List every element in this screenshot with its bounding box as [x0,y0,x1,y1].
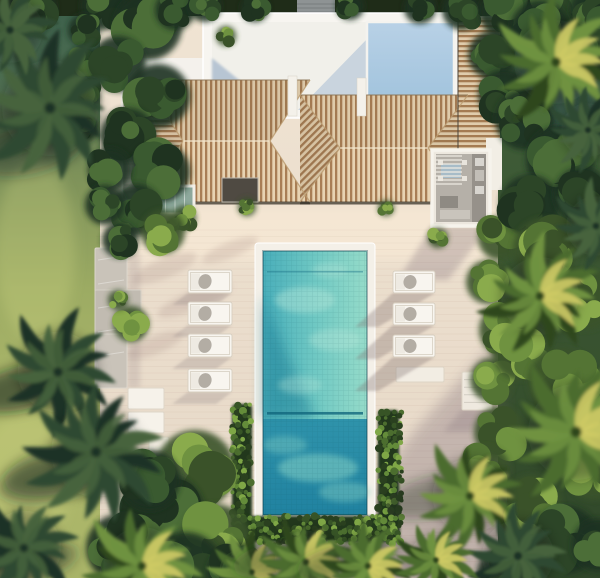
hedge-leaf [245,444,252,451]
hedge-leaf [342,537,347,542]
hedge-leaf [239,482,246,489]
hedge-leaf [247,492,252,497]
hedge-leaf [398,478,404,484]
hedge-leaf [236,464,241,469]
hedge-leaf [375,428,382,435]
hedge-leaf [398,440,403,445]
hedge-leaf [390,467,398,475]
hedge-leaf [398,520,404,526]
hedge-leaf [376,416,381,421]
garden-bush [165,79,185,99]
hedge-leaf [238,459,243,464]
hedge-leaf [247,479,255,487]
garden-bush [93,203,111,221]
hedge-leaf [259,529,263,533]
hedge-leaf [383,409,390,416]
hedge-leaf [308,521,312,525]
hedge-leaf [374,504,382,512]
pool-tile-grid [263,251,367,515]
hedge-leaf [397,413,403,419]
hedge-leaf [264,515,268,519]
hedge-leaf [384,471,389,476]
hedge-leaf [366,520,373,527]
potted-plant [114,292,123,301]
hedge-leaf [378,421,382,425]
hedge-leaf [379,476,387,484]
hedge-leaf [240,497,247,504]
hedge-leaf [230,490,234,494]
garden-bush [344,7,354,17]
hedge-leaf [240,504,246,510]
hedge-leaf [392,410,397,415]
palm-crown [585,127,591,133]
garden-bush [543,230,562,249]
garden-bush [111,235,128,252]
outdoor-kitchen-part [440,196,458,208]
hedge-leaf [380,517,387,524]
hedge-leaf [392,482,398,488]
deck-furniture [128,388,164,409]
hedge-leaf [388,521,392,525]
outdoor-kitchen-part [475,158,484,166]
hedge-leaf [322,524,329,531]
outdoor-kitchen-part [462,160,467,165]
potted-plant [386,205,392,211]
hedge-leaf [354,519,361,526]
hedge-leaf [396,422,403,429]
hedge-leaf [341,520,346,525]
garden-bush [501,123,520,142]
hedge-leaf [396,460,401,465]
garden-bush [147,230,160,243]
potted-plant [223,35,235,47]
hedge-leaf [241,468,247,474]
hedge-leaf [264,520,271,527]
hedge-leaf [388,430,394,436]
hedge-leaf [393,443,400,450]
garden-bush [482,218,503,239]
garden-bush [514,190,544,220]
garden-bush [462,4,478,20]
hedge-leaf [370,514,374,518]
hedge-leaf [375,444,383,452]
garden-bush [205,7,219,21]
hedge-leaf [316,515,320,519]
palm-crown [593,223,600,230]
palm-crown [551,57,561,67]
hedge-leaf [380,487,388,495]
hedge-leaf [251,519,255,523]
garden-bush [415,5,428,18]
potted-plant [247,199,253,205]
hedge-leaf [381,496,387,502]
hedge-leaf [384,416,388,420]
palm-crown [514,552,522,560]
hedge-leaf [235,422,241,428]
hedge-leaf [248,403,252,407]
palm-crown [570,426,581,437]
hedge-leaf [271,535,275,539]
hedge-leaf [247,435,252,440]
outdoor-kitchen-part [440,210,470,219]
palm-crown [91,447,102,458]
hedge-leaf [382,451,390,459]
hedge-leaf [332,522,336,526]
hedge-leaf [306,525,311,530]
hedge-leaf [285,513,291,519]
hedge-leaf [278,529,282,533]
hedge-leaf [341,528,347,534]
garden-bush [121,121,139,139]
hedge-leaf [244,461,252,469]
garden-bush [94,159,122,187]
garden-bush [164,4,183,23]
garden-bush [476,366,494,384]
hedge-leaf [383,422,387,426]
hedge-leaf [248,424,252,428]
garden-bush [541,349,571,379]
hedge-leaf [240,437,245,442]
hedge-leaf [255,515,261,521]
pool-ledge-line [267,271,363,273]
outdoor-kitchen-part [475,170,484,181]
hedge-leaf [242,413,247,418]
pool-lane-line [267,412,363,415]
recessed-glass-entry [222,178,258,202]
potted-plant [124,319,140,335]
layer-pool [255,243,375,523]
roof-wall-post [357,78,366,116]
garden-bush [135,76,164,105]
hedge-leaf [248,418,254,424]
hedge-leaf [239,446,244,451]
hedge-leaf [375,467,380,472]
palm-crown [20,544,29,553]
garden-bush [478,34,508,64]
hedge-leaf [387,436,391,440]
palm-crown [466,492,475,501]
palm-crown [433,557,439,563]
hedge-leaf [400,470,404,474]
hedge-leaf [382,443,386,447]
roof-wall-post [288,76,297,116]
palm-crown [6,26,14,34]
hedge-leaf [312,526,318,532]
hedge-leaf [304,514,311,521]
outdoor-kitchen-part [475,186,484,194]
aerial-photo: Aerial top-down view of a white tropical… [0,0,600,578]
hedge-leaf [237,429,243,435]
hedge-leaf [246,429,251,434]
potted-plant [109,301,116,308]
aerial-view-svg: Aerial top-down view of a white tropical… [0,0,600,578]
outdoor-kitchen-part [462,176,467,181]
hedge-leaf [244,403,248,407]
garden-bush [77,15,96,34]
hedge-leaf [229,427,237,435]
hedge-leaf [278,518,282,522]
potted-plant [436,231,445,240]
